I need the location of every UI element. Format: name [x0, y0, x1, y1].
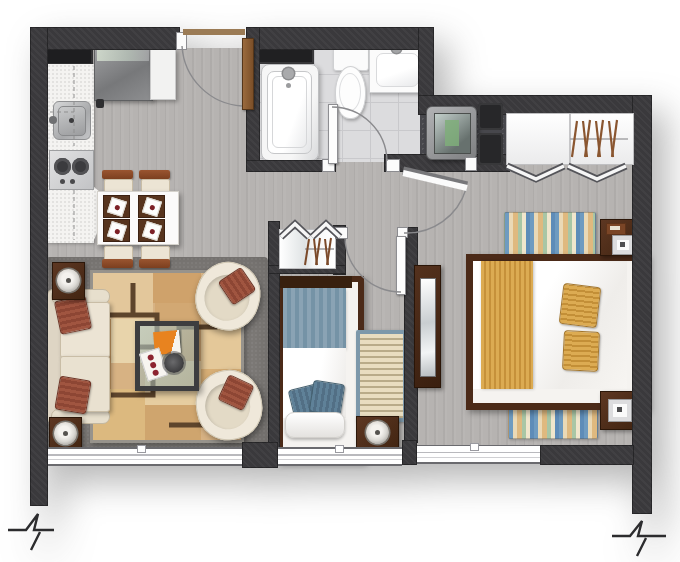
- plate: [142, 221, 162, 241]
- tv-unit: [426, 106, 477, 160]
- kitchen-cooktop: [49, 150, 94, 190]
- bed-blanket-blue: [283, 288, 346, 348]
- chair-back-rail: [139, 259, 170, 268]
- side-table: [52, 262, 85, 300]
- dining-chair: [102, 244, 133, 268]
- window-mullion: [335, 445, 344, 453]
- wall-break-symbol-right: [612, 521, 666, 556]
- sofa-pillow: [54, 375, 91, 414]
- cooktop-knob: [70, 179, 75, 184]
- window-mullion: [470, 443, 479, 451]
- wall-window-separator: [402, 440, 417, 465]
- placemat: [104, 220, 129, 241]
- wall-right: [632, 95, 652, 514]
- side-table: [49, 417, 82, 451]
- cooktop-burner: [72, 158, 89, 175]
- refrigerator: [94, 46, 153, 101]
- placemat: [104, 196, 129, 217]
- entry-threshold: [183, 29, 245, 35]
- toilet: [333, 47, 367, 119]
- dresser-mirror: [420, 278, 436, 377]
- nightstand-lamp-square: [612, 235, 634, 255]
- table-lamp: [54, 422, 77, 445]
- refrigerator-handle: [96, 99, 104, 108]
- bed-runner-gold: [481, 261, 533, 389]
- chair-back-rail: [139, 170, 170, 179]
- entry-door-leaf: [242, 38, 254, 110]
- dining-table: [97, 191, 179, 245]
- sink-basin: [376, 53, 419, 87]
- sofa: [47, 289, 110, 422]
- toilet-seat-line: [339, 73, 361, 111]
- sink-faucet: [49, 116, 57, 124]
- chair-back-rail: [102, 170, 133, 179]
- wall-bottom-right: [540, 445, 634, 465]
- bathtub-faucet: [283, 68, 294, 79]
- plate: [107, 197, 127, 217]
- kitchen-sink: [53, 101, 91, 140]
- coffee-table: [135, 321, 199, 391]
- floor-plan-canvas: [0, 0, 680, 562]
- tv-screen-reflection: [445, 120, 459, 146]
- hall-closet-interior: [279, 229, 336, 269]
- double-bed: [466, 254, 648, 410]
- placemat: [139, 220, 164, 241]
- bed-pillow-gold: [562, 330, 600, 372]
- media-speaker-block: [478, 133, 503, 165]
- refrigerator-open-door: [150, 49, 176, 100]
- door-jamb: [386, 159, 400, 172]
- small-bedroom-door-leaf: [396, 236, 406, 295]
- chair-back-rail: [102, 259, 133, 268]
- bathroom-sink: [369, 46, 425, 93]
- tv-screen: [434, 113, 471, 154]
- sofa-pillow: [54, 295, 92, 335]
- bathtub: [261, 64, 319, 161]
- small-bedroom-rug: [356, 330, 407, 422]
- plate: [142, 197, 162, 217]
- window-mullion: [137, 445, 146, 453]
- nightstand-lamp-square: [608, 399, 632, 422]
- bed-headboard: [277, 276, 352, 288]
- door-jamb: [335, 227, 348, 239]
- bathtub-drain: [286, 83, 291, 88]
- media-speaker-block: [478, 103, 503, 130]
- dining-chair: [139, 244, 170, 268]
- wall-break-symbol-left: [8, 514, 54, 550]
- table-lamp: [366, 421, 389, 444]
- nightstand: [356, 416, 399, 450]
- table-bowl: [164, 353, 184, 373]
- wall-top-left: [30, 27, 180, 50]
- single-bed: [277, 276, 364, 462]
- table-lamp: [57, 269, 80, 292]
- refrigerator-top-reflection: [97, 49, 149, 61]
- wall-left: [30, 27, 48, 506]
- bed-pillow-gold: [559, 283, 602, 328]
- apartment-building: [0, 0, 680, 562]
- master-closet-interior: [506, 113, 634, 165]
- door-jamb: [465, 157, 477, 171]
- bathroom-door-leaf: [328, 104, 338, 164]
- bedroom-striped-rug: [504, 212, 596, 256]
- mirror-dresser: [414, 265, 441, 388]
- wall-window-pier: [242, 442, 278, 468]
- sink-drain: [69, 118, 74, 123]
- bed-pillow-blue: [309, 380, 346, 417]
- placemat: [139, 196, 164, 217]
- plate: [107, 221, 127, 241]
- wall-top-middle: [246, 27, 432, 50]
- wall-step: [418, 27, 434, 99]
- bed-blanket-roll: [285, 412, 345, 438]
- nightstand-clock: [606, 223, 626, 235]
- cooktop-knob: [60, 179, 65, 184]
- cooktop-burner: [54, 158, 71, 175]
- closet-divider: [569, 114, 571, 164]
